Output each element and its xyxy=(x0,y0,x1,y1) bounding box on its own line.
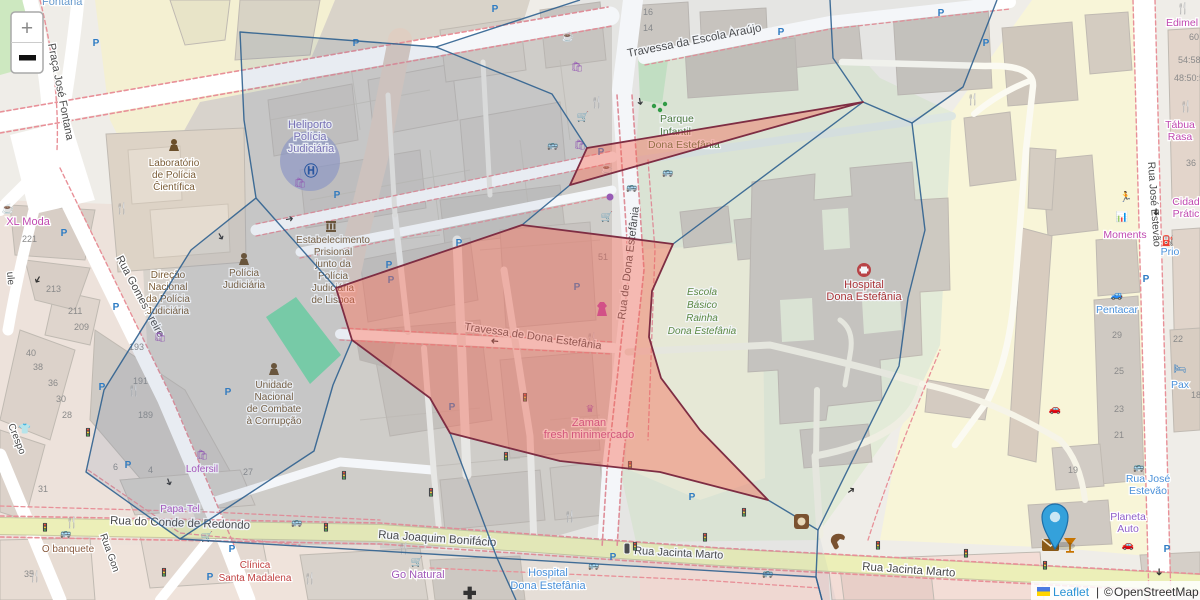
svg-text:21: 21 xyxy=(1114,430,1124,440)
svg-text:🚌: 🚌 xyxy=(60,528,71,538)
svg-text:Prátic: Prátic xyxy=(1173,208,1200,220)
svg-text:P: P xyxy=(492,4,499,15)
svg-text:22: 22 xyxy=(1173,334,1183,344)
svg-text:🍴: 🍴 xyxy=(303,572,317,585)
svg-text:Clínica: Clínica xyxy=(240,560,271,571)
svg-text:29: 29 xyxy=(1112,330,1122,340)
svg-text:P: P xyxy=(113,302,120,313)
svg-text:O banquete: O banquete xyxy=(42,544,95,555)
svg-text:©: © xyxy=(1104,585,1113,599)
svg-text:Rua José: Rua José xyxy=(1126,473,1171,485)
svg-text:48:50:5: 48:50:5 xyxy=(1174,73,1200,83)
svg-text:Prio: Prio xyxy=(1161,246,1180,258)
svg-text:🚦: 🚦 xyxy=(873,540,883,550)
svg-text:38: 38 xyxy=(33,362,43,372)
svg-text:P: P xyxy=(207,572,214,583)
svg-text:Moments: Moments xyxy=(1103,229,1146,241)
svg-text:🍴: 🍴 xyxy=(966,93,980,106)
svg-text:Laboratório: Laboratório xyxy=(149,158,200,169)
svg-text:P: P xyxy=(61,228,68,239)
svg-text:221: 221 xyxy=(22,234,37,244)
svg-text:Estevão: Estevão xyxy=(1129,485,1167,497)
svg-text:🚦: 🚦 xyxy=(83,427,93,437)
svg-text:🍴: 🍴 xyxy=(28,570,42,583)
svg-text:+: + xyxy=(21,17,33,40)
svg-text:Go Natural: Go Natural xyxy=(391,569,444,581)
svg-text:Dona Estefânia: Dona Estefânia xyxy=(510,580,586,592)
svg-text:Fontana: Fontana xyxy=(42,0,83,8)
svg-text:36: 36 xyxy=(48,378,58,388)
svg-text:Pentacar: Pentacar xyxy=(1096,304,1139,316)
svg-text:P: P xyxy=(93,38,100,49)
svg-text:Cidad: Cidad xyxy=(1172,196,1200,208)
svg-text:🏃: 🏃 xyxy=(1120,190,1132,203)
svg-text:28: 28 xyxy=(62,410,72,420)
svg-text:25: 25 xyxy=(1114,366,1124,376)
svg-text:OpenStreetMap: OpenStreetMap xyxy=(1114,585,1199,599)
svg-text:XL Moda: XL Moda xyxy=(6,216,51,228)
svg-text:🚗: 🚗 xyxy=(1122,540,1134,551)
svg-text:209: 209 xyxy=(74,322,89,332)
svg-text:Leaflet: Leaflet xyxy=(1053,585,1090,599)
svg-text:P: P xyxy=(983,38,990,49)
svg-text:➜: ➜ xyxy=(1153,568,1164,576)
svg-text:de Polícia: de Polícia xyxy=(152,170,196,181)
svg-text:P: P xyxy=(1164,544,1171,555)
svg-text:213: 213 xyxy=(46,284,61,294)
svg-text:Hospital: Hospital xyxy=(528,567,568,579)
svg-text:🍴: 🍴 xyxy=(1176,2,1190,15)
svg-text:60: 60 xyxy=(1189,32,1199,42)
svg-text:Santa Madalena: Santa Madalena xyxy=(219,573,292,584)
svg-text:Tábua: Tábua xyxy=(1165,119,1195,131)
svg-text:🚌: 🚌 xyxy=(1133,462,1144,472)
svg-text:P: P xyxy=(1143,274,1150,285)
svg-text:🚦: 🚦 xyxy=(961,548,971,558)
svg-text:54:58: 54:58 xyxy=(1178,55,1200,65)
svg-text:🍴: 🍴 xyxy=(115,202,129,215)
svg-text:|: | xyxy=(1096,585,1099,599)
svg-text:🚦: 🚦 xyxy=(40,522,50,532)
svg-text:Rasa: Rasa xyxy=(1168,131,1193,143)
svg-text:⛽: ⛽ xyxy=(1162,234,1174,247)
svg-text:19: 19 xyxy=(1068,465,1078,475)
svg-text:🍴: 🍴 xyxy=(1179,100,1193,113)
svg-text:👕: 👕 xyxy=(19,423,31,435)
svg-text:🚙: 🚙 xyxy=(1111,290,1123,301)
svg-text:🚦: 🚦 xyxy=(1040,560,1050,570)
svg-text:🚗: 🚗 xyxy=(1049,404,1061,415)
svg-text:➜: ➜ xyxy=(1150,208,1161,216)
svg-text:Ĉientífica: Ĉientífica xyxy=(153,180,195,193)
svg-text:31: 31 xyxy=(38,484,48,494)
svg-text:Auto: Auto xyxy=(1117,523,1139,535)
svg-text:🛒: 🛒 xyxy=(411,555,423,568)
svg-text:🚦: 🚦 xyxy=(159,567,169,577)
svg-text:36: 36 xyxy=(1186,158,1196,168)
svg-text:23: 23 xyxy=(1114,404,1124,414)
svg-text:Pax: Pax xyxy=(1171,379,1190,391)
svg-text:Planeta: Planeta xyxy=(1110,511,1146,523)
svg-text:18: 18 xyxy=(1191,390,1200,400)
svg-text:40: 40 xyxy=(26,348,36,358)
svg-text:☕: ☕ xyxy=(2,202,14,215)
svg-text:P: P xyxy=(229,544,236,555)
svg-text:Edimel: Edimel xyxy=(1166,17,1198,29)
svg-text:📊: 📊 xyxy=(1116,210,1128,223)
svg-text:ule: ule xyxy=(4,271,16,286)
svg-text:30: 30 xyxy=(56,394,66,404)
svg-text:🛏: 🛏 xyxy=(1174,364,1187,375)
svg-text:211: 211 xyxy=(68,306,82,316)
